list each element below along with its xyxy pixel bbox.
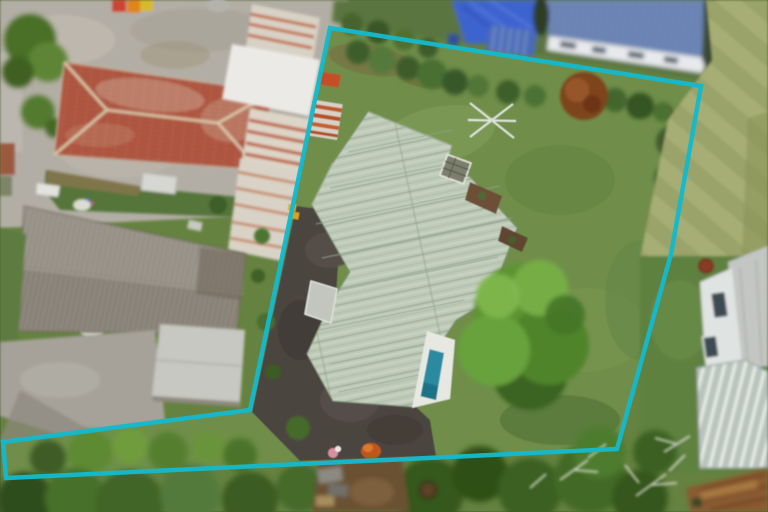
- aerial-photo: [0, 0, 768, 512]
- tree-stump: [420, 482, 436, 498]
- copper-beech-bush: [560, 72, 608, 120]
- greenhouse: [697, 360, 768, 468]
- laundry-white: [73, 199, 91, 211]
- dirt-mound: [350, 478, 394, 506]
- aerial-photo-canvas: [0, 0, 768, 512]
- white-gable-house: [697, 246, 768, 468]
- gravel-patch: [140, 41, 210, 69]
- lawn-dark-patch: [505, 145, 615, 215]
- asphalt-patch: [367, 415, 423, 445]
- barn-dark-end: [196, 247, 246, 300]
- blue-bin: [447, 33, 459, 45]
- left-edge-red-items: [0, 143, 15, 175]
- left-edge-green-items: [0, 176, 12, 196]
- garden-shed-white: [141, 173, 177, 194]
- roof-weathering: [65, 123, 135, 147]
- pergola-plant: [692, 498, 702, 507]
- garden-bush: [209, 196, 227, 214]
- manhole-firepit: [699, 259, 713, 273]
- driveway-light-patch: [20, 362, 100, 398]
- clothesline-hub: [490, 118, 494, 122]
